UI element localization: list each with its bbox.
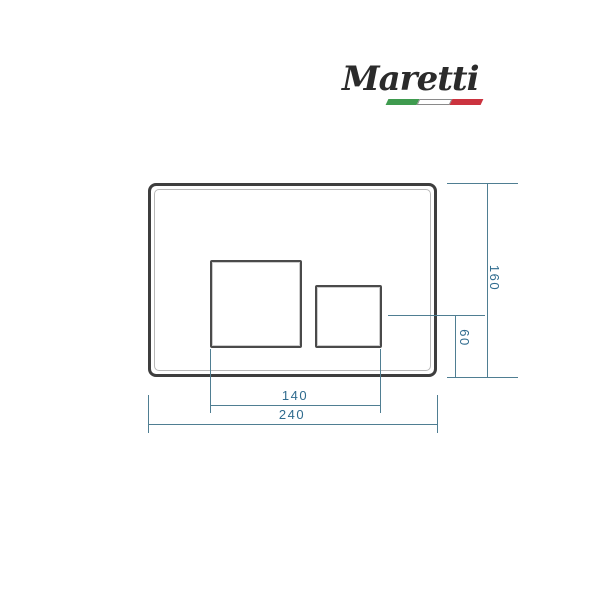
dim-span-line (210, 405, 381, 406)
dim-width-extension-left (148, 395, 149, 433)
flush-plate-outline (148, 183, 437, 377)
dim-width-line (148, 424, 438, 425)
italy-flag-stripe-icon (386, 99, 484, 105)
dim-offset-extension-top (388, 315, 485, 316)
large-flush-button (210, 260, 302, 348)
flag-white-segment (417, 99, 453, 105)
dim-width-label: 240 (267, 408, 317, 422)
dim-height-tick-top (447, 183, 518, 184)
dim-height-label: 160 (487, 258, 501, 298)
flag-green-segment (386, 99, 420, 105)
brand-name: Maretti (342, 60, 479, 98)
brand-logo: Maretti (330, 58, 530, 118)
dim-span-extension-right (380, 349, 381, 413)
dim-offset-line (455, 315, 456, 377)
dim-height-tick-bottom (447, 377, 518, 378)
flag-red-segment (450, 99, 484, 105)
dim-offset-label: 60 (457, 322, 471, 354)
small-flush-button (315, 285, 382, 348)
dim-span-extension-left (210, 349, 211, 413)
product-drawing-canvas: Maretti 160 60 140 240 (0, 0, 600, 600)
dim-width-extension-right (437, 395, 438, 433)
dim-span-label: 140 (270, 389, 320, 403)
